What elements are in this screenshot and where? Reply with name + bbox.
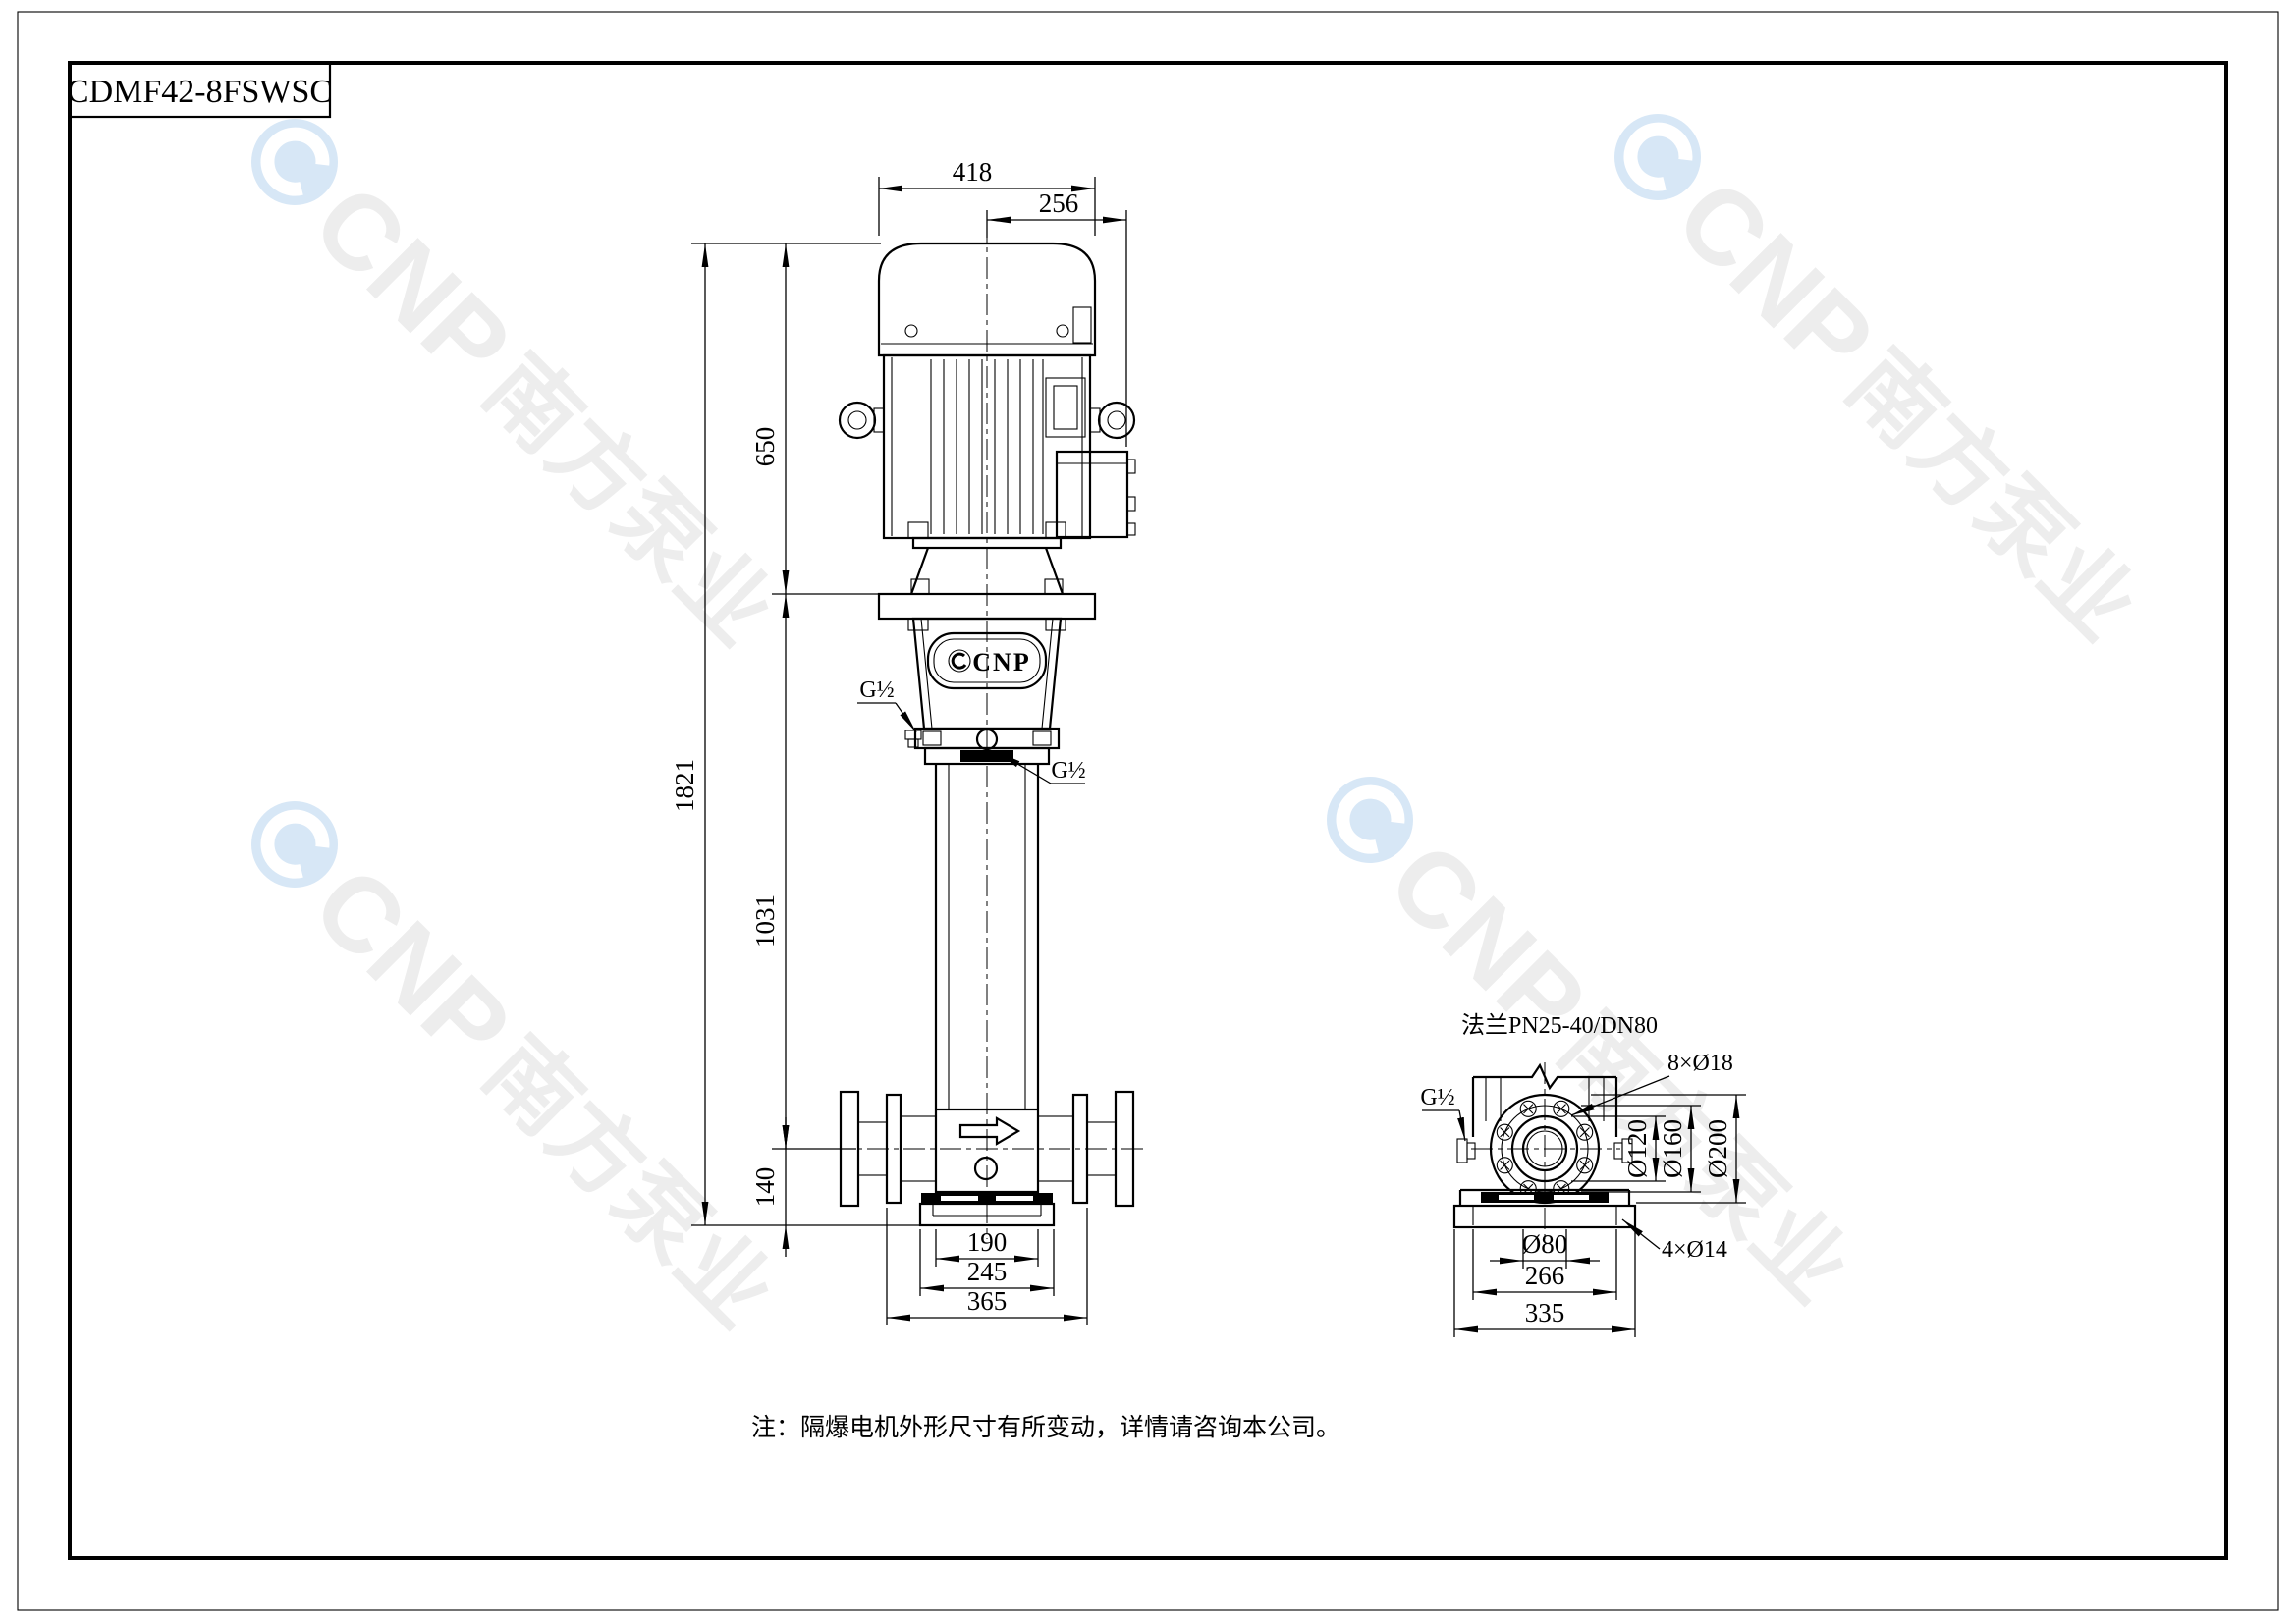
dim-d120: Ø120 <box>1622 1119 1652 1178</box>
dim-335: 335 <box>1525 1298 1565 1327</box>
watermark-brand: CNP <box>1654 157 1896 400</box>
dim-365: 365 <box>967 1286 1008 1316</box>
dim-1821: 1821 <box>670 759 699 812</box>
dim-140: 140 <box>750 1167 780 1208</box>
port-label: G½ <box>1051 758 1085 784</box>
drawing-note: 注：隔爆电机外形尺寸有所变动，详情请咨询本公司。 <box>751 1414 1340 1441</box>
dim-266: 266 <box>1525 1261 1565 1290</box>
dim-418: 418 <box>953 157 993 187</box>
dim-190: 190 <box>967 1227 1008 1257</box>
bolt-hole-label: 8×Ø18 <box>1667 1051 1733 1076</box>
foot-hole-label: 4×Ø14 <box>1662 1237 1727 1263</box>
pump-technical-drawing: CNP 南方泵业 CNP 南方泵业 CNP 南方泵业 CNP 南方泵业 CDMF… <box>0 0 2296 1623</box>
dim-245: 245 <box>967 1257 1008 1286</box>
cable-conduit <box>1073 307 1091 343</box>
watermark-top-right: CNP 南方泵业 <box>1583 86 2161 665</box>
model-number: CDMF42-8FSWSC <box>67 74 332 110</box>
title-block: CDMF42-8FSWSC <box>67 63 332 117</box>
watermarks: CNP 南方泵业 CNP 南方泵业 CNP 南方泵业 CNP 南方泵业 <box>220 86 2161 1352</box>
watermark-brand-cn: 南方泵业 <box>465 1019 792 1345</box>
dim-650: 650 <box>750 427 780 467</box>
front-view: CNP G½ G½ <box>670 157 1143 1325</box>
watermark-brand: CNP <box>291 844 533 1087</box>
watermark-top-left: CNP 南方泵业 <box>220 91 798 670</box>
dim-d200: Ø200 <box>1703 1119 1732 1178</box>
detail-port-callout: G½ <box>1420 1085 1465 1141</box>
drawing-sheet: CNP 南方泵业 CNP 南方泵业 CNP 南方泵业 CNP 南方泵业 CDMF… <box>0 0 2296 1623</box>
dim-d160: Ø160 <box>1658 1119 1687 1178</box>
flow-direction-arrow <box>960 1118 1018 1144</box>
lifting-eye-left <box>840 403 884 438</box>
dim-256: 256 <box>1039 189 1079 218</box>
watermark-brand: CNP <box>291 162 533 405</box>
lifting-eye-right <box>1090 403 1134 438</box>
port-label: G½ <box>859 677 894 703</box>
dim-1031: 1031 <box>750 894 780 947</box>
dim-d80: Ø80 <box>1522 1229 1568 1259</box>
watermark-brand-cn: 南方泵业 <box>465 337 792 663</box>
watermark-brand-cn: 南方泵业 <box>1829 332 2155 658</box>
watermark-mid-left: CNP 南方泵业 <box>220 774 798 1352</box>
drain-plug <box>975 1158 997 1179</box>
port-callout-left: G½ <box>857 677 921 747</box>
badge-text: CNP <box>972 648 1030 676</box>
port-label: G½ <box>1420 1085 1454 1110</box>
flange-spec-title: 法兰PN25-40/DN80 <box>1461 1012 1658 1039</box>
